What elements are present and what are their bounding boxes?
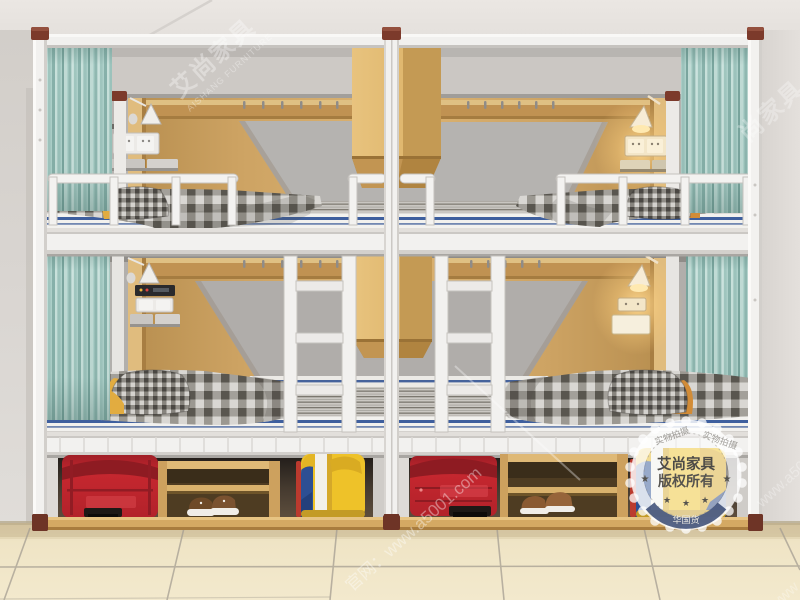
svg-text:★: ★: [663, 495, 671, 505]
svg-text:★: ★: [641, 474, 650, 485]
svg-text:★: ★: [701, 495, 709, 505]
svg-text:艾尚家具: 艾尚家具: [657, 455, 715, 473]
svg-text:华国货: 华国货: [672, 514, 699, 525]
svg-text:版权所有: 版权所有: [658, 473, 714, 489]
svg-text:★: ★: [723, 474, 732, 485]
svg-text:★: ★: [682, 498, 690, 508]
